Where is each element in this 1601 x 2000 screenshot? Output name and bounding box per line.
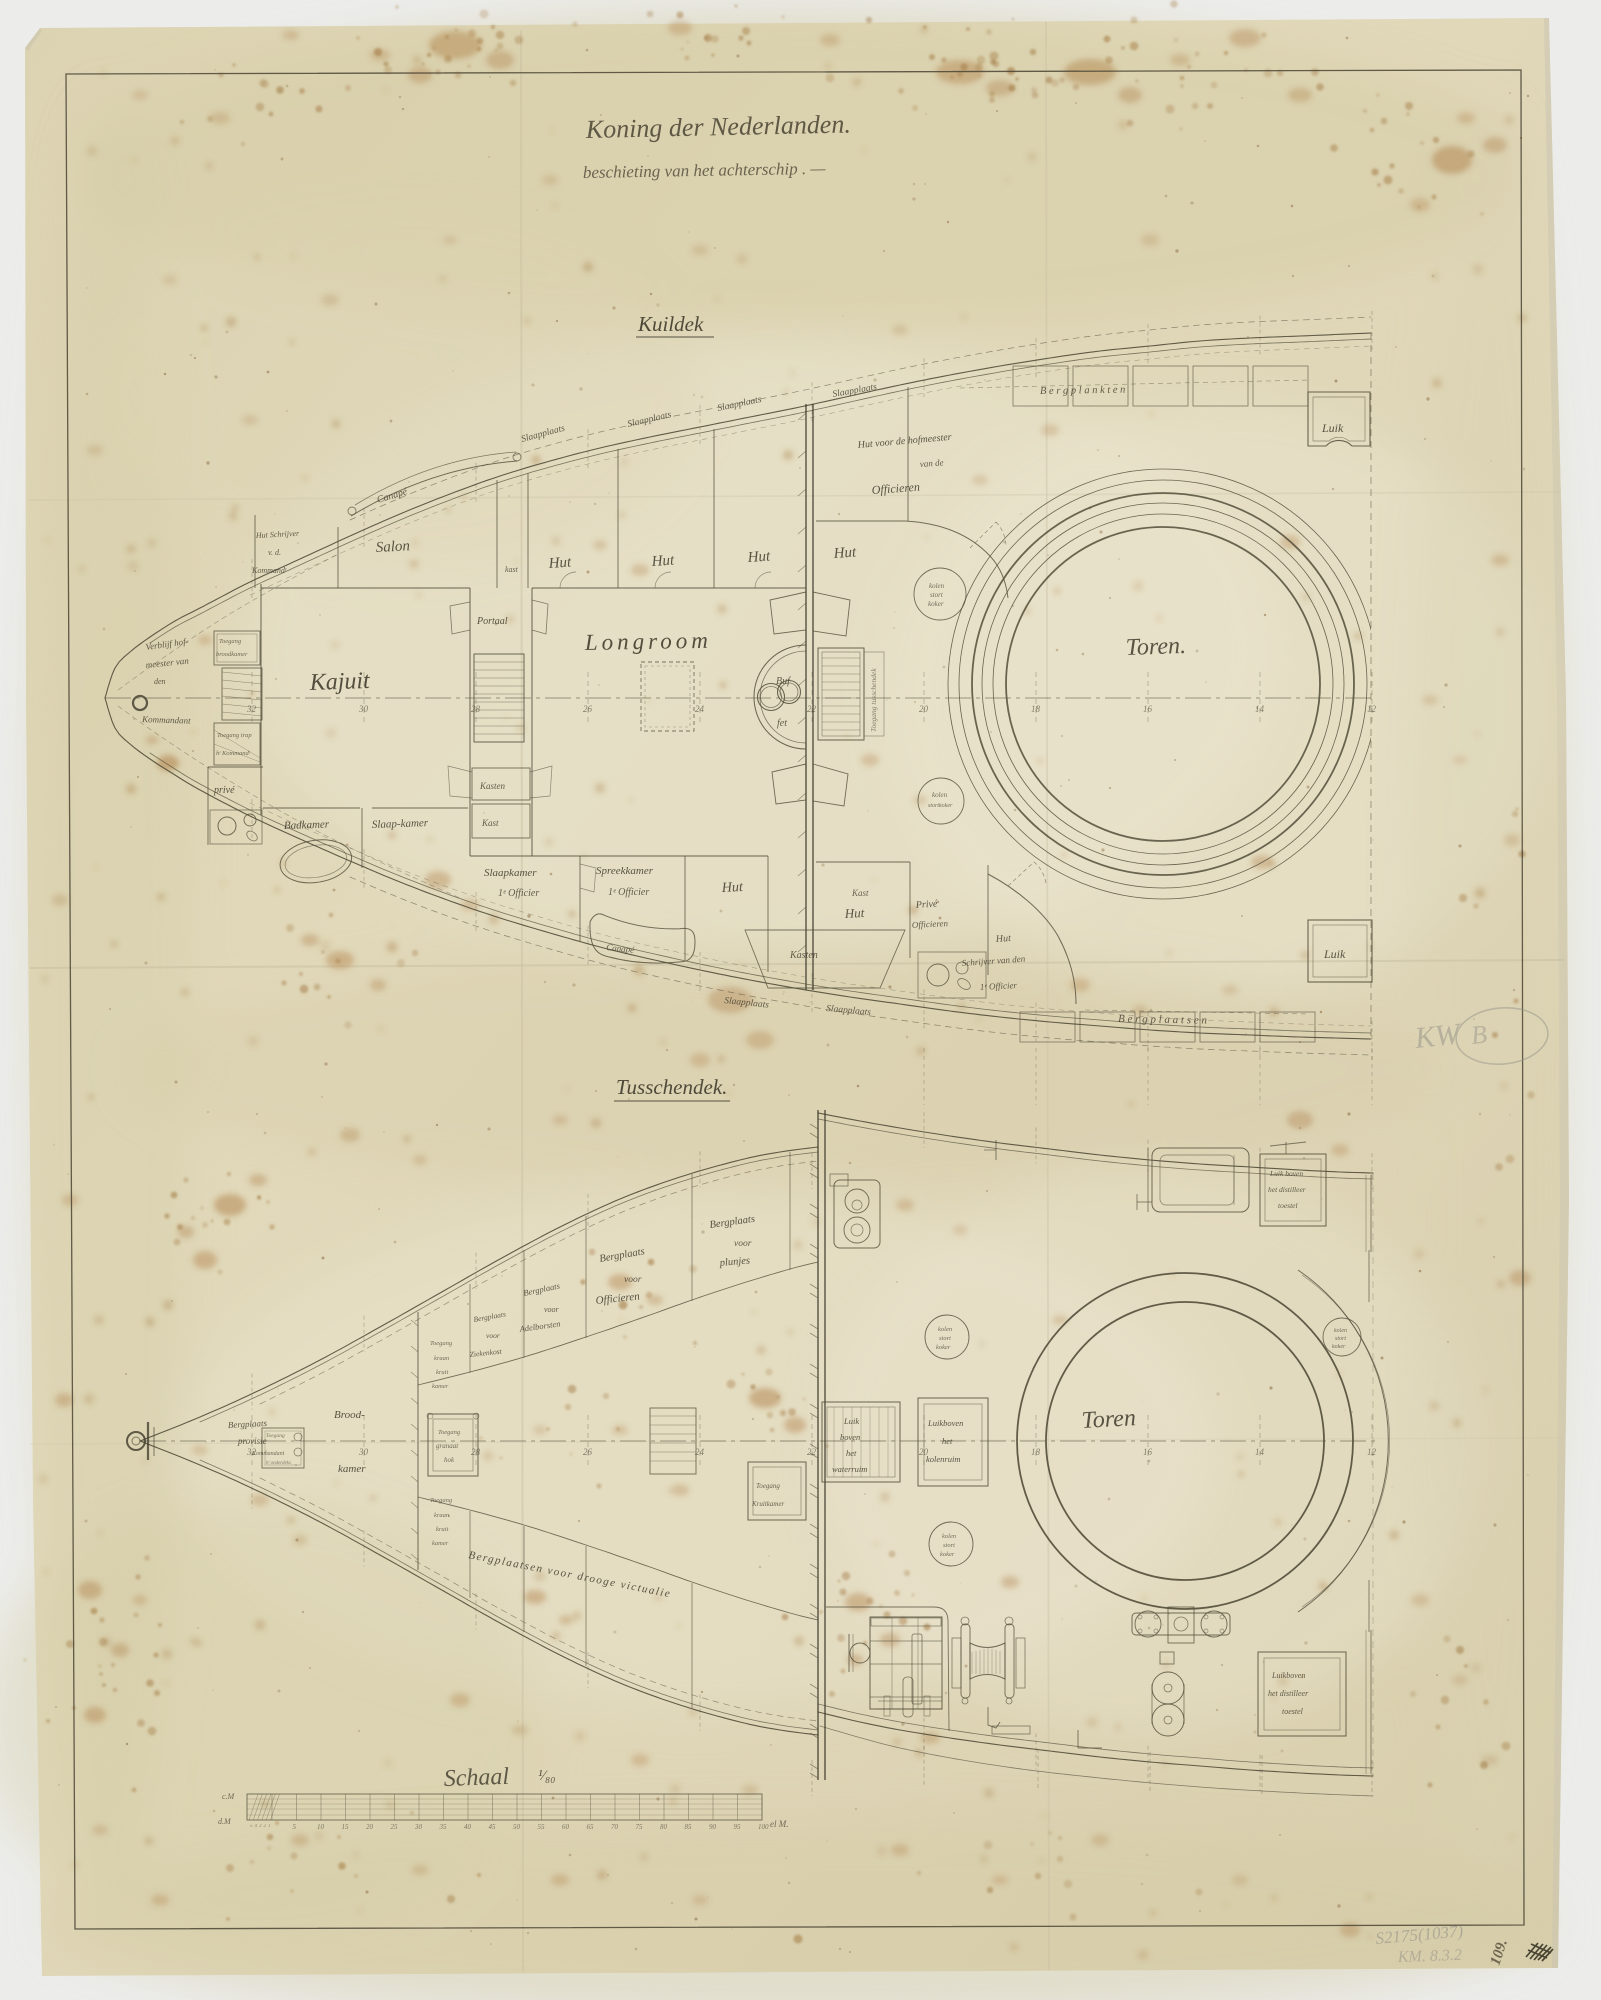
svg-text:el M.: el M. <box>770 1819 789 1829</box>
svg-text:50: 50 <box>513 1823 521 1831</box>
svg-text:koker: koker <box>940 1551 955 1558</box>
svg-text:Luik: Luik <box>843 1416 859 1426</box>
svg-text:20: 20 <box>366 1823 374 1831</box>
svg-text:22: 22 <box>807 1447 817 1457</box>
svg-text:hᵗ Kommandᵗ: hᵗ Kommandᵗ <box>216 750 251 757</box>
svg-text:40: 40 <box>464 1823 472 1831</box>
svg-text:Hut: Hut <box>832 544 857 562</box>
svg-text:12: 12 <box>1367 1447 1377 1457</box>
svg-text:1ᵉ Officier: 1ᵉ Officier <box>498 888 539 899</box>
svg-text:het: het <box>846 1448 857 1458</box>
svg-text:kraan: kraan <box>434 1355 449 1362</box>
svg-text:fet: fet <box>777 718 787 729</box>
svg-text:14: 14 <box>1255 704 1265 714</box>
svg-text:Hut: Hut <box>994 933 1011 945</box>
svg-text:26: 26 <box>583 1447 593 1457</box>
svg-text:Schaal: Schaal <box>443 1764 510 1792</box>
svg-text:Toegang: Toegang <box>756 1482 780 1490</box>
svg-text:30: 30 <box>414 1823 423 1831</box>
svg-text:kruit: kruit <box>436 1369 448 1376</box>
svg-text:boven: boven <box>840 1432 860 1442</box>
svg-text:5: 5 <box>293 1823 297 1831</box>
svg-text:c.M: c.M <box>222 1792 236 1801</box>
svg-text:privé: privé <box>213 785 235 796</box>
svg-text:25: 25 <box>391 1823 399 1831</box>
svg-text:Luikboven: Luikboven <box>1271 1671 1305 1680</box>
svg-text:kolen: kolen <box>1334 1328 1347 1334</box>
svg-text:kraan: kraan <box>434 1512 449 1519</box>
svg-text:28: 28 <box>471 704 481 714</box>
svg-text:voor: voor <box>734 1239 752 1249</box>
svg-text:1ᵉ Officier: 1ᵉ Officier <box>608 887 649 898</box>
svg-text:Luik: Luik <box>1323 947 1346 961</box>
svg-text:voor: voor <box>624 1275 642 1285</box>
svg-text:d.M: d.M <box>218 1817 232 1826</box>
svg-text:Slaapkamer: Slaapkamer <box>484 867 537 879</box>
svg-text:20: 20 <box>919 704 929 714</box>
svg-text:kamer: kamer <box>432 1540 449 1547</box>
svg-text:broodkamer: broodkamer <box>216 651 248 658</box>
svg-text:Toegang: Toegang <box>219 638 242 645</box>
svg-text:koker: koker <box>936 1344 951 1351</box>
svg-text:Portaal: Portaal <box>476 616 508 627</box>
svg-text:kamer: kamer <box>338 1463 366 1475</box>
svg-text:het distilleer: het distilleer <box>1268 1185 1306 1194</box>
svg-text:Hut: Hut <box>720 880 744 896</box>
svg-text:26: 26 <box>583 704 593 714</box>
svg-text:Slaap-kamer: Slaap-kamer <box>372 817 429 831</box>
svg-text:30: 30 <box>358 1447 369 1457</box>
svg-text:koker: koker <box>928 600 944 608</box>
svg-text:Kuildek: Kuildek <box>637 312 704 336</box>
svg-text:65: 65 <box>587 1823 595 1831</box>
svg-text:B: B <box>1470 1019 1489 1050</box>
svg-text:kolenruim: kolenruim <box>926 1454 960 1464</box>
svg-text:55: 55 <box>538 1823 546 1831</box>
svg-text:Luik boven: Luik boven <box>1269 1169 1303 1178</box>
svg-text:Hut: Hut <box>650 552 675 570</box>
svg-text:Kruitkamer: Kruitkamer <box>751 1500 785 1508</box>
svg-text:10: 10 <box>317 1823 325 1831</box>
svg-text:Toegang: Toegang <box>430 1497 453 1504</box>
svg-text:Kajuit: Kajuit <box>308 668 371 696</box>
svg-text:16: 16 <box>1143 1447 1153 1457</box>
svg-text:koker: koker <box>1332 1344 1346 1350</box>
svg-text:waterruim: waterruim <box>832 1464 867 1474</box>
svg-text:Hut: Hut <box>746 548 771 566</box>
svg-text:35: 35 <box>439 1823 448 1831</box>
svg-text:KM. 8.3.2: KM. 8.3.2 <box>1397 1947 1463 1966</box>
svg-text:Kommandant: Kommandant <box>141 714 191 726</box>
svg-text:kolen: kolen <box>929 582 945 590</box>
svg-text:Luikboven: Luikboven <box>927 1418 963 1428</box>
svg-text:¹⁄₈₀: ¹⁄₈₀ <box>538 1768 555 1784</box>
svg-text:1: 1 <box>268 1824 271 1829</box>
svg-text:stort: stort <box>1335 1336 1346 1342</box>
svg-text:Salon: Salon <box>375 538 410 556</box>
svg-text:Kommandant: Kommandant <box>251 1451 285 1457</box>
svg-text:kolen: kolen <box>932 791 948 799</box>
svg-text:stort: stort <box>943 1542 955 1549</box>
svg-text:60: 60 <box>562 1823 570 1831</box>
svg-text:Kast: Kast <box>851 888 869 898</box>
svg-text:Privé: Privé <box>914 898 938 911</box>
svg-text:voor: voor <box>486 1331 500 1340</box>
svg-text:Luik: Luik <box>1321 421 1344 435</box>
svg-text:Koning der Nederlanden.: Koning der Nederlanden. <box>585 109 852 144</box>
svg-text:kast: kast <box>505 565 519 574</box>
svg-text:24: 24 <box>695 704 705 714</box>
svg-text:van de: van de <box>919 457 943 469</box>
svg-text:1ᵉ Officier: 1ᵉ Officier <box>980 980 1018 992</box>
svg-text:75: 75 <box>636 1823 644 1831</box>
svg-text:100: 100 <box>758 1823 769 1831</box>
svg-text:Kast: Kast <box>481 818 499 828</box>
svg-text:22: 22 <box>807 704 817 714</box>
svg-text:28: 28 <box>471 1447 481 1457</box>
svg-text:80: 80 <box>660 1823 668 1831</box>
svg-text:Toegang: Toegang <box>438 1429 461 1436</box>
svg-text:Toren.: Toren. <box>1125 633 1186 661</box>
svg-text:Kasten: Kasten <box>479 781 506 791</box>
svg-text:hᵗ onderdeks: hᵗ onderdeks <box>266 1460 291 1466</box>
svg-text:stort: stort <box>930 591 944 599</box>
svg-text:Buf: Buf <box>776 676 791 687</box>
svg-text:toestel: toestel <box>1278 1201 1298 1210</box>
svg-text:v. d.: v. d. <box>268 548 281 557</box>
svg-text:90: 90 <box>709 1823 717 1831</box>
svg-text:Kommandᵗ: Kommandᵗ <box>251 566 287 575</box>
svg-text:het: het <box>942 1436 953 1446</box>
svg-text:den: den <box>154 677 166 686</box>
svg-text:Longroom: Longroom <box>584 628 712 655</box>
svg-text:Toegang trap: Toegang trap <box>217 732 252 739</box>
svg-text:Badkamer: Badkamer <box>284 818 330 832</box>
svg-text:Toegang: Toegang <box>266 1433 285 1439</box>
svg-text:12: 12 <box>1367 704 1377 714</box>
svg-text:kruit: kruit <box>436 1526 448 1533</box>
svg-text:voor: voor <box>544 1305 560 1314</box>
svg-text:14: 14 <box>1255 1447 1265 1457</box>
svg-text:45: 45 <box>489 1823 497 1831</box>
svg-text:kolen: kolen <box>938 1326 952 1333</box>
svg-text:Tusschendek.: Tusschendek. <box>616 1075 727 1099</box>
svg-text:85: 85 <box>685 1823 693 1831</box>
svg-text:18: 18 <box>1031 704 1041 714</box>
svg-text:hok: hok <box>444 1456 455 1464</box>
svg-text:granaat: granaat <box>436 1442 459 1450</box>
svg-text:Hut: Hut <box>547 554 572 572</box>
svg-text:Brood-: Brood- <box>334 1409 365 1421</box>
svg-text:stortkoker: stortkoker <box>928 803 953 809</box>
svg-text:toestel: toestel <box>1282 1707 1304 1716</box>
svg-text:18: 18 <box>1031 1447 1041 1457</box>
svg-text:Toegang tusschendek: Toegang tusschendek <box>869 668 878 732</box>
svg-text:Hut: Hut <box>843 905 865 921</box>
svg-text:15: 15 <box>342 1823 350 1831</box>
svg-text:30: 30 <box>358 704 369 714</box>
svg-text:B e r g p l a a t s e n: B e r g p l a a t s e n <box>1118 1013 1208 1027</box>
svg-text:32: 32 <box>246 704 257 714</box>
svg-text:95: 95 <box>734 1823 742 1831</box>
svg-text:Toegang: Toegang <box>430 1340 453 1347</box>
svg-text:stort: stort <box>939 1335 951 1342</box>
svg-text:70: 70 <box>611 1823 619 1831</box>
svg-text:B e r g p l a n k t e n: B e r g p l a n k t e n <box>1040 385 1126 397</box>
svg-text:het distilleer: het distilleer <box>1268 1689 1309 1698</box>
svg-text:Kasten: Kasten <box>789 950 818 961</box>
svg-text:Spreekkamer: Spreekkamer <box>596 865 654 877</box>
svg-text:Toren: Toren <box>1081 1405 1137 1434</box>
svg-text:Officieren: Officieren <box>912 918 949 930</box>
svg-text:kamer: kamer <box>432 1383 449 1390</box>
svg-text:16: 16 <box>1143 704 1153 714</box>
svg-text:kolen: kolen <box>942 1533 956 1540</box>
